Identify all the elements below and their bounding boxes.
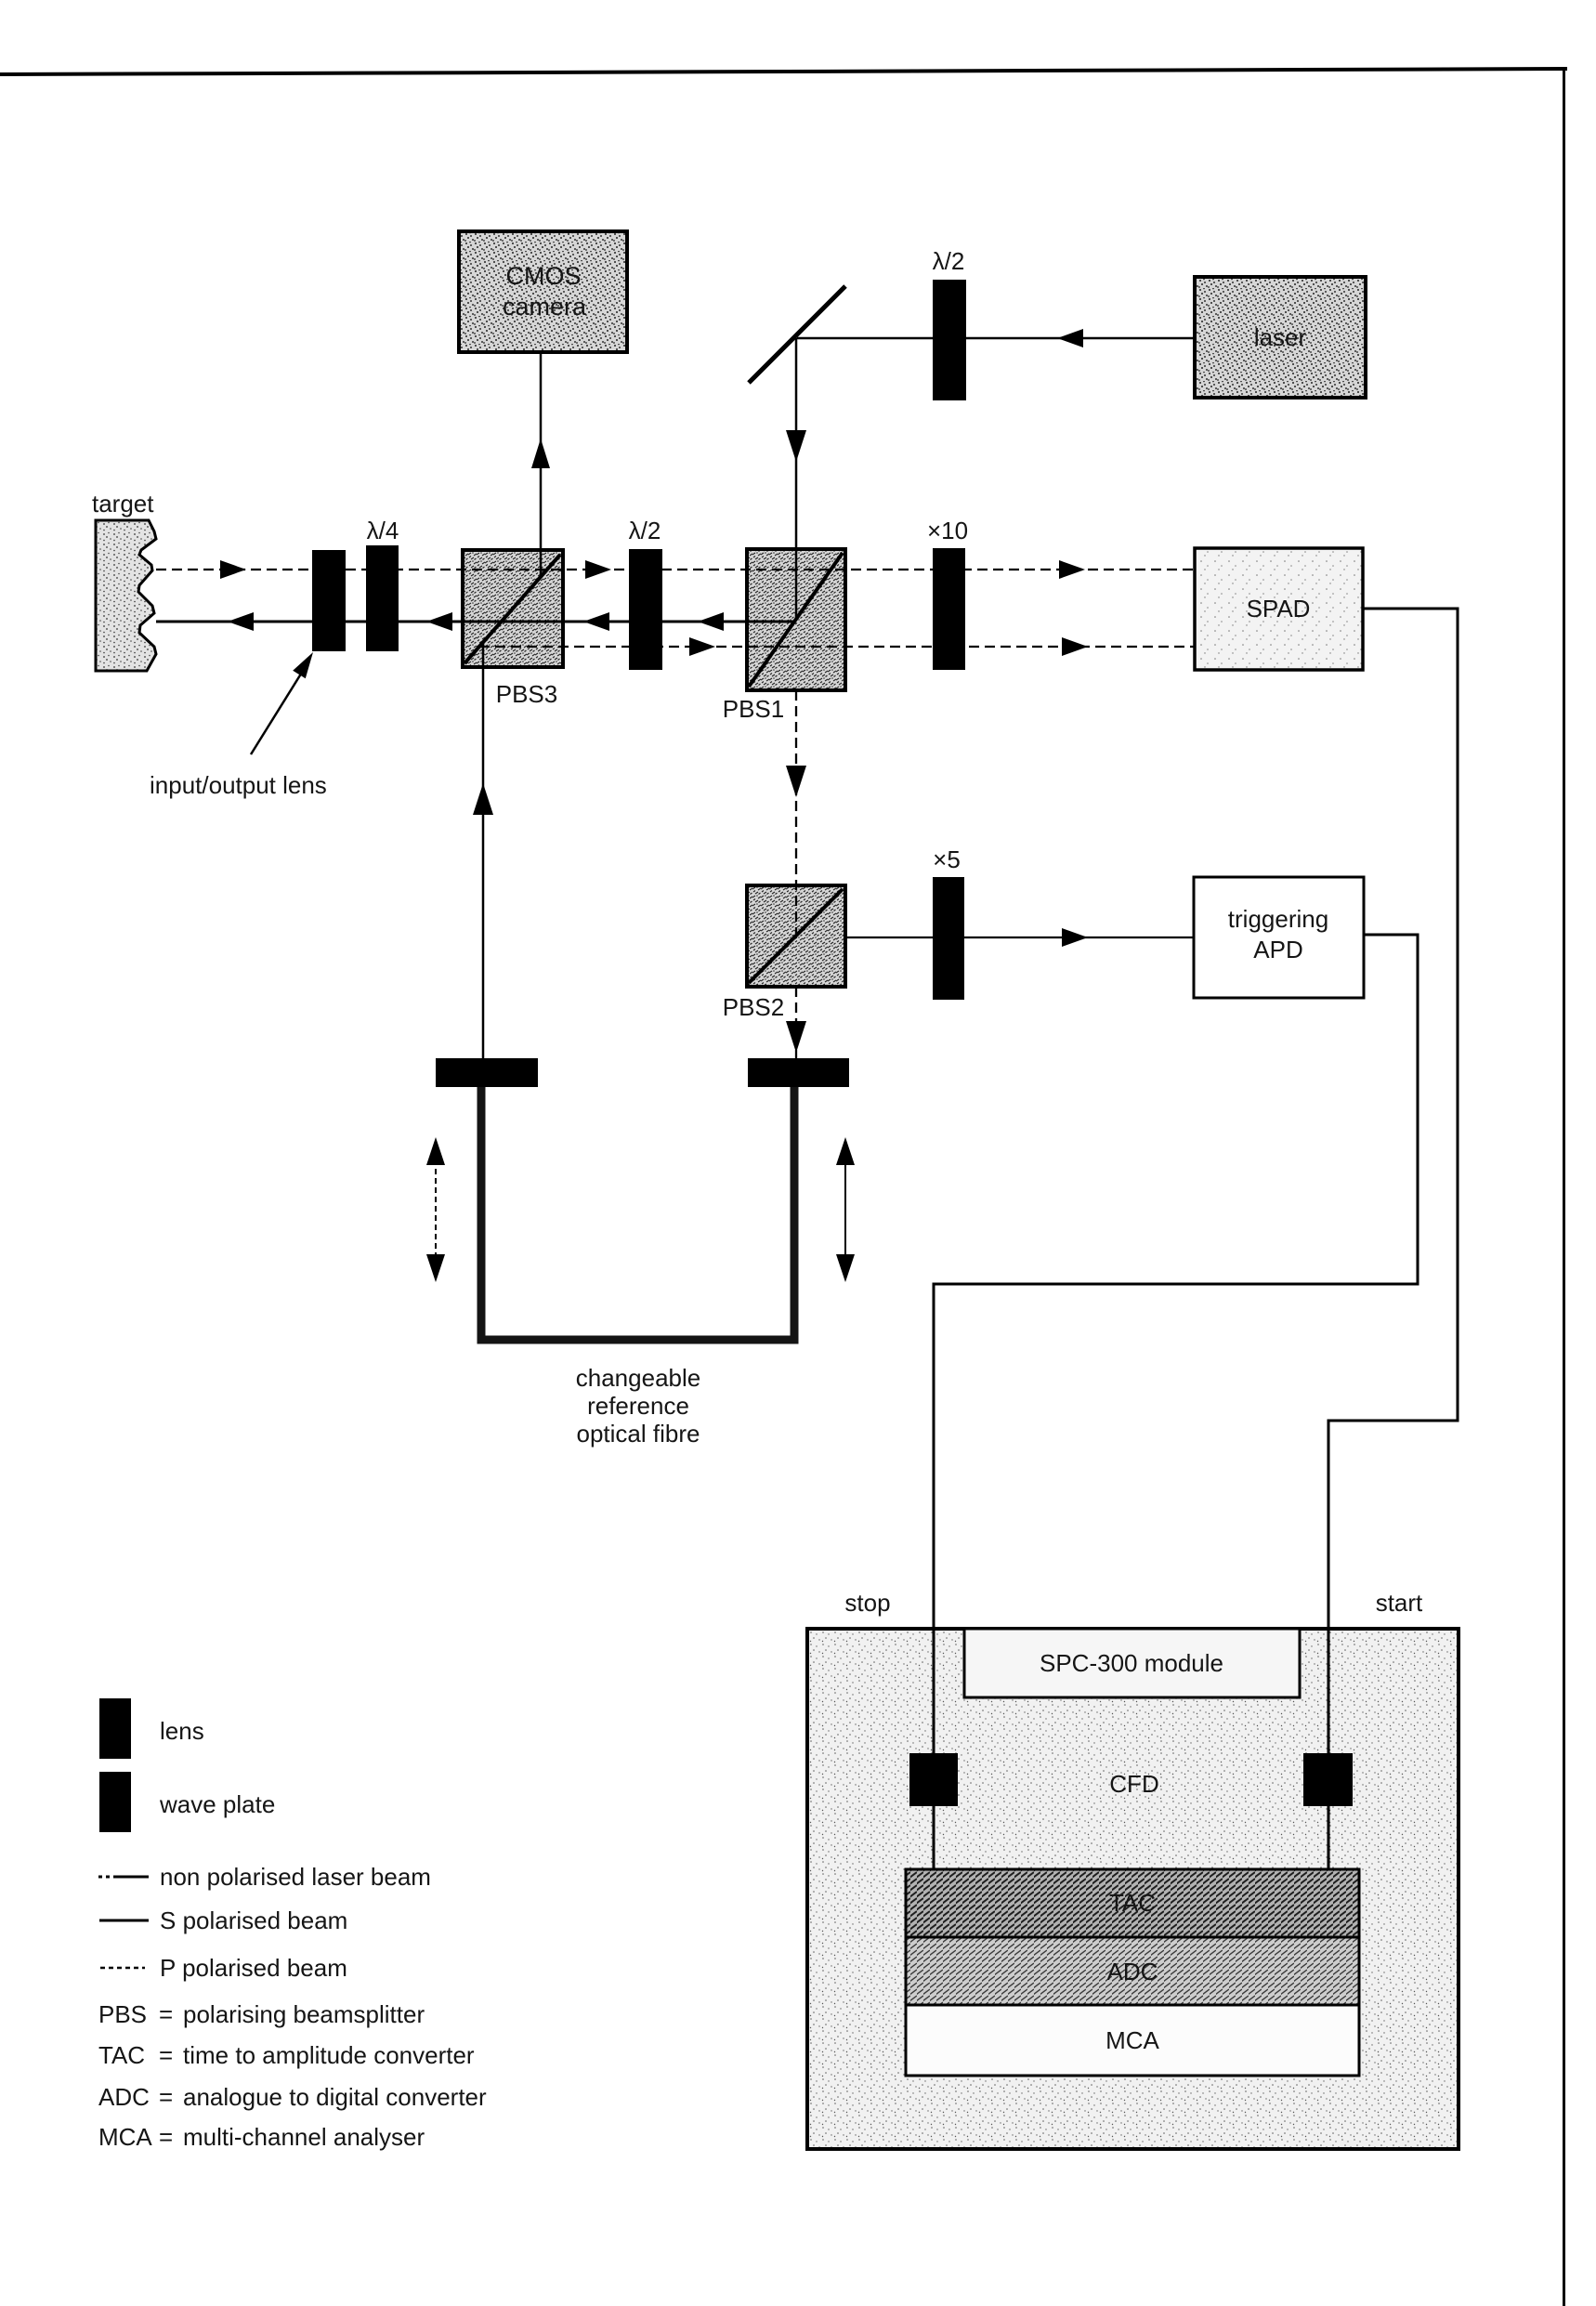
svg-text:ADC: ADC: [1107, 1958, 1158, 1985]
svg-text:analogue to digital converter: analogue to digital converter: [183, 2083, 487, 2111]
svg-text:=: =: [159, 2083, 173, 2111]
svg-text:wave plate: wave plate: [159, 1790, 275, 1818]
svg-text:SPC-300 module: SPC-300 module: [1040, 1649, 1223, 1677]
svg-text:ADC: ADC: [98, 2083, 150, 2111]
svg-text:input/output lens: input/output lens: [150, 771, 327, 799]
svg-text:=: =: [159, 2000, 173, 2028]
svg-text:×10: ×10: [927, 517, 968, 544]
svg-text:target: target: [92, 490, 154, 518]
svg-text:MCA: MCA: [98, 2123, 152, 2151]
svg-text:polarising beamsplitter: polarising beamsplitter: [183, 2000, 425, 2028]
svg-text:PBS1: PBS1: [723, 695, 785, 723]
svg-text:TAC: TAC: [98, 2041, 145, 2069]
svg-text:=: =: [159, 2041, 173, 2069]
svg-text:CMOS: CMOS: [506, 262, 582, 290]
svg-text:APD: APD: [1253, 936, 1302, 963]
svg-text:reference: reference: [587, 1392, 689, 1420]
svg-text:MCA: MCA: [1105, 2026, 1159, 2054]
svg-text:triggering: triggering: [1228, 905, 1328, 933]
svg-text:=: =: [159, 2123, 173, 2151]
svg-text:PBS3: PBS3: [496, 680, 558, 708]
svg-text:SPAD: SPAD: [1247, 595, 1311, 622]
svg-text:multi-channel analyser: multi-channel analyser: [183, 2123, 425, 2151]
svg-text:optical fibre: optical fibre: [577, 1420, 700, 1448]
svg-text:λ/2: λ/2: [933, 247, 965, 275]
svg-text:×5: ×5: [933, 845, 961, 873]
svg-text:PBS: PBS: [98, 2000, 147, 2028]
svg-text:changeable: changeable: [576, 1364, 700, 1392]
svg-text:λ/4: λ/4: [367, 517, 399, 544]
svg-text:lens: lens: [160, 1717, 204, 1745]
svg-text:CFD: CFD: [1109, 1770, 1158, 1798]
svg-text:stop: stop: [844, 1589, 890, 1617]
svg-text:time to amplitude converter: time to amplitude converter: [183, 2041, 475, 2069]
svg-text:TAC: TAC: [1109, 1889, 1156, 1917]
svg-text:λ/2: λ/2: [629, 517, 661, 544]
svg-text:P polarised beam: P polarised beam: [160, 1954, 347, 1982]
svg-text:start: start: [1376, 1589, 1423, 1617]
svg-text:camera: camera: [503, 293, 587, 321]
svg-text:laser: laser: [1254, 323, 1307, 351]
svg-text:PBS2: PBS2: [723, 993, 785, 1021]
svg-text:S polarised beam: S polarised beam: [160, 1906, 347, 1934]
svg-text:non polarised laser beam: non polarised laser beam: [160, 1863, 431, 1891]
